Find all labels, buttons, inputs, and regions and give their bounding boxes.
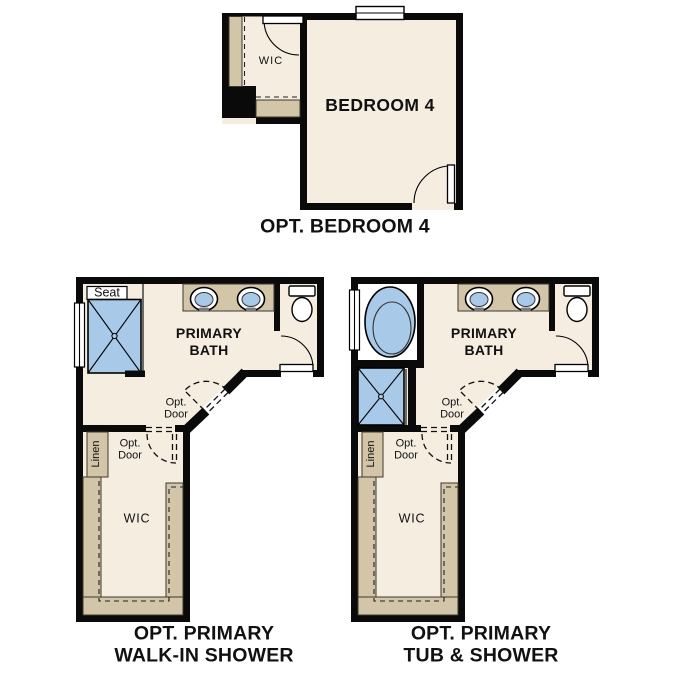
- tub-window: [350, 290, 360, 350]
- primary-bath-left-line2: BATH: [176, 342, 242, 359]
- shower-window: [75, 303, 85, 367]
- bedroom4-room-label: BEDROOM 4: [325, 96, 435, 114]
- vanity-left: [183, 284, 274, 311]
- opt-door-label-lower-right: Opt. Door: [394, 439, 418, 462]
- primary-bath-label-left: PRIMARY BATH: [176, 325, 242, 359]
- caption-tub-shower: OPT. PRIMARY TUB & SHOWER: [403, 624, 558, 667]
- tub-fixture: [351, 277, 424, 368]
- primary-bath-right-line2: BATH: [451, 342, 517, 359]
- seat-label: Seat: [94, 286, 120, 299]
- primary-bath-left-line1: PRIMARY: [176, 325, 242, 342]
- linen-label-left: Linen: [91, 441, 103, 468]
- opt-door-label-upper-right: Opt. Door: [440, 398, 464, 421]
- wic-label-left: WIC: [124, 512, 151, 525]
- caption-walk-in-shower: OPT. PRIMARY WALK-IN SHOWER: [114, 624, 293, 667]
- opt-door-label-upper-left: Opt. Door: [164, 398, 188, 421]
- wic-label-right: WIC: [399, 512, 426, 525]
- vanity-right: [458, 284, 549, 311]
- primary-bath-right-line1: PRIMARY: [451, 325, 517, 342]
- toilet-right: [564, 286, 590, 322]
- caption-opt-bedroom4: OPT. BEDROOM 4: [260, 216, 430, 238]
- opt-door-label-lower-left: Opt. Door: [118, 439, 142, 462]
- primary-bath-label-right: PRIMARY BATH: [451, 325, 517, 359]
- floor-plan-canvas: WIC BEDROOM 4 OPT. BEDROOM 4 Seat PRIMAR…: [0, 0, 687, 687]
- linen-label-right: Linen: [366, 441, 378, 468]
- wic-label-bedroom4: WIC: [259, 56, 283, 68]
- bedroom4-window: [356, 7, 404, 20]
- toilet-left: [289, 286, 315, 322]
